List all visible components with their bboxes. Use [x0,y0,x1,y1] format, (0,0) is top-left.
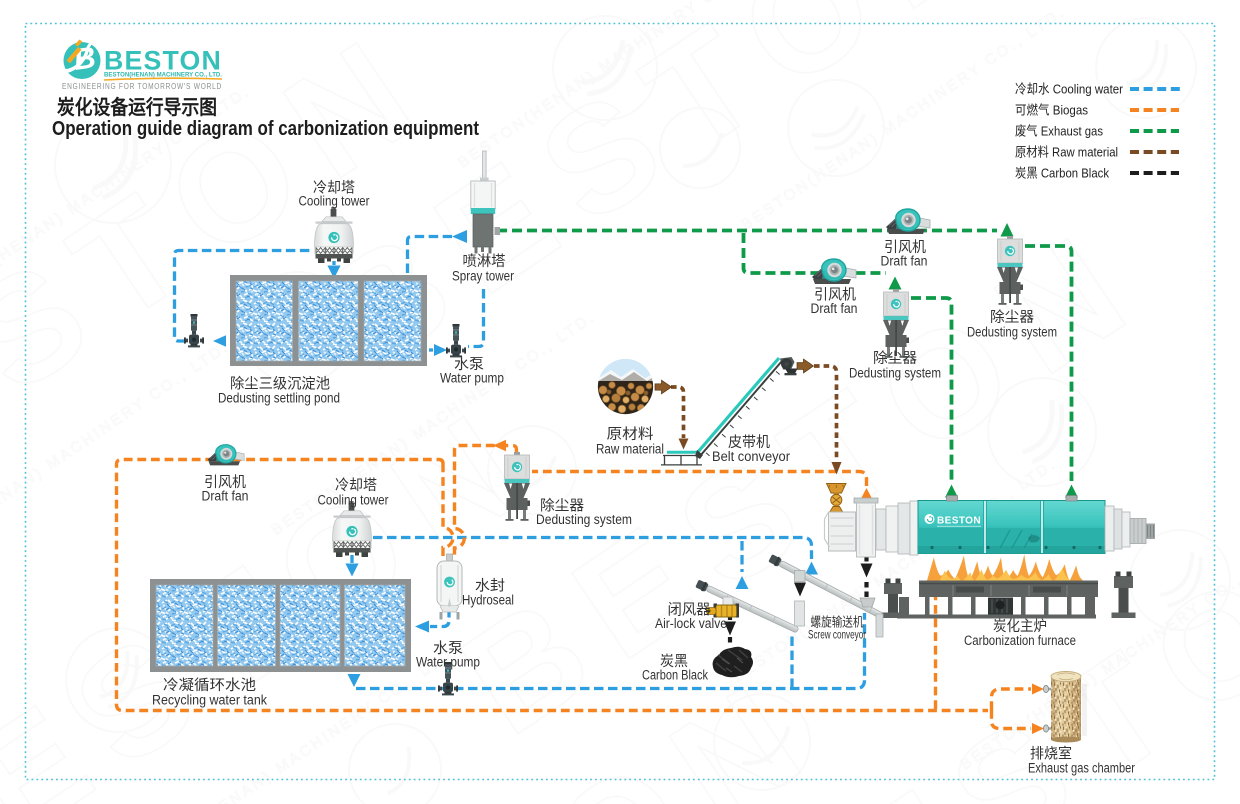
svg-text:冷凝循环水池: 冷凝循环水池 [163,677,256,694]
svg-text:Carbon Black: Carbon Black [642,668,708,683]
svg-text:可燃气 Biogas: 可燃气 Biogas [1015,103,1088,118]
svg-text:Dedusting settling pond: Dedusting settling pond [218,391,340,406]
svg-text:Draft fan: Draft fan [811,301,858,316]
svg-text:喷淋塔: 喷淋塔 [463,253,506,270]
svg-text:Raw material: Raw material [596,442,664,457]
svg-text:炭化设备运行导示图: 炭化设备运行导示图 [57,95,217,119]
svg-text:除尘器: 除尘器 [990,309,1035,326]
svg-text:Draft fan: Draft fan [202,489,249,504]
svg-text:冷却水 Cooling water: 冷却水 Cooling water [1015,82,1124,97]
svg-text:Air-lock valve: Air-lock valve [655,616,727,631]
svg-text:Cooling tower: Cooling tower [299,194,370,209]
svg-text:ENGINEERING FOR TOMORROW'S WOR: ENGINEERING FOR TOMORROW'S WORLD [62,81,222,91]
svg-text:冷却塔: 冷却塔 [335,477,377,494]
svg-text:原材料 Raw material: 原材料 Raw material [1015,145,1118,160]
svg-text:Carbonization furnace: Carbonization furnace [964,633,1076,648]
svg-text:Spray tower: Spray tower [452,269,514,284]
svg-text:除尘器: 除尘器 [873,350,918,367]
svg-text:Cooling tower: Cooling tower [318,493,389,508]
svg-text:Hydroseal: Hydroseal [462,593,514,608]
svg-text:Belt conveyor: Belt conveyor [712,449,790,464]
svg-text:Exhaust gas chamber: Exhaust gas chamber [1028,761,1135,776]
svg-text:Dedusting system: Dedusting system [536,512,632,527]
svg-text:原材料: 原材料 [607,426,654,443]
svg-text:Dedusting system: Dedusting system [967,325,1057,340]
svg-text:Draft fan: Draft fan [881,254,928,269]
svg-text:BESTON: BESTON [937,515,981,527]
svg-text:Dedusting system: Dedusting system [849,366,941,381]
svg-text:Operation guide diagram of car: Operation guide diagram of carbonization… [52,118,479,140]
svg-text:Recycling water tank: Recycling water tank [152,693,267,708]
svg-text:B: B [72,41,98,77]
svg-text:废气 Exhaust gas: 废气 Exhaust gas [1015,124,1103,139]
svg-text:Water pump: Water pump [440,371,504,386]
svg-text:炭黑 Carbon Black: 炭黑 Carbon Black [1015,166,1109,181]
svg-text:Screw conveyor: Screw conveyor [808,628,866,642]
svg-text:Water pump: Water pump [416,655,480,670]
